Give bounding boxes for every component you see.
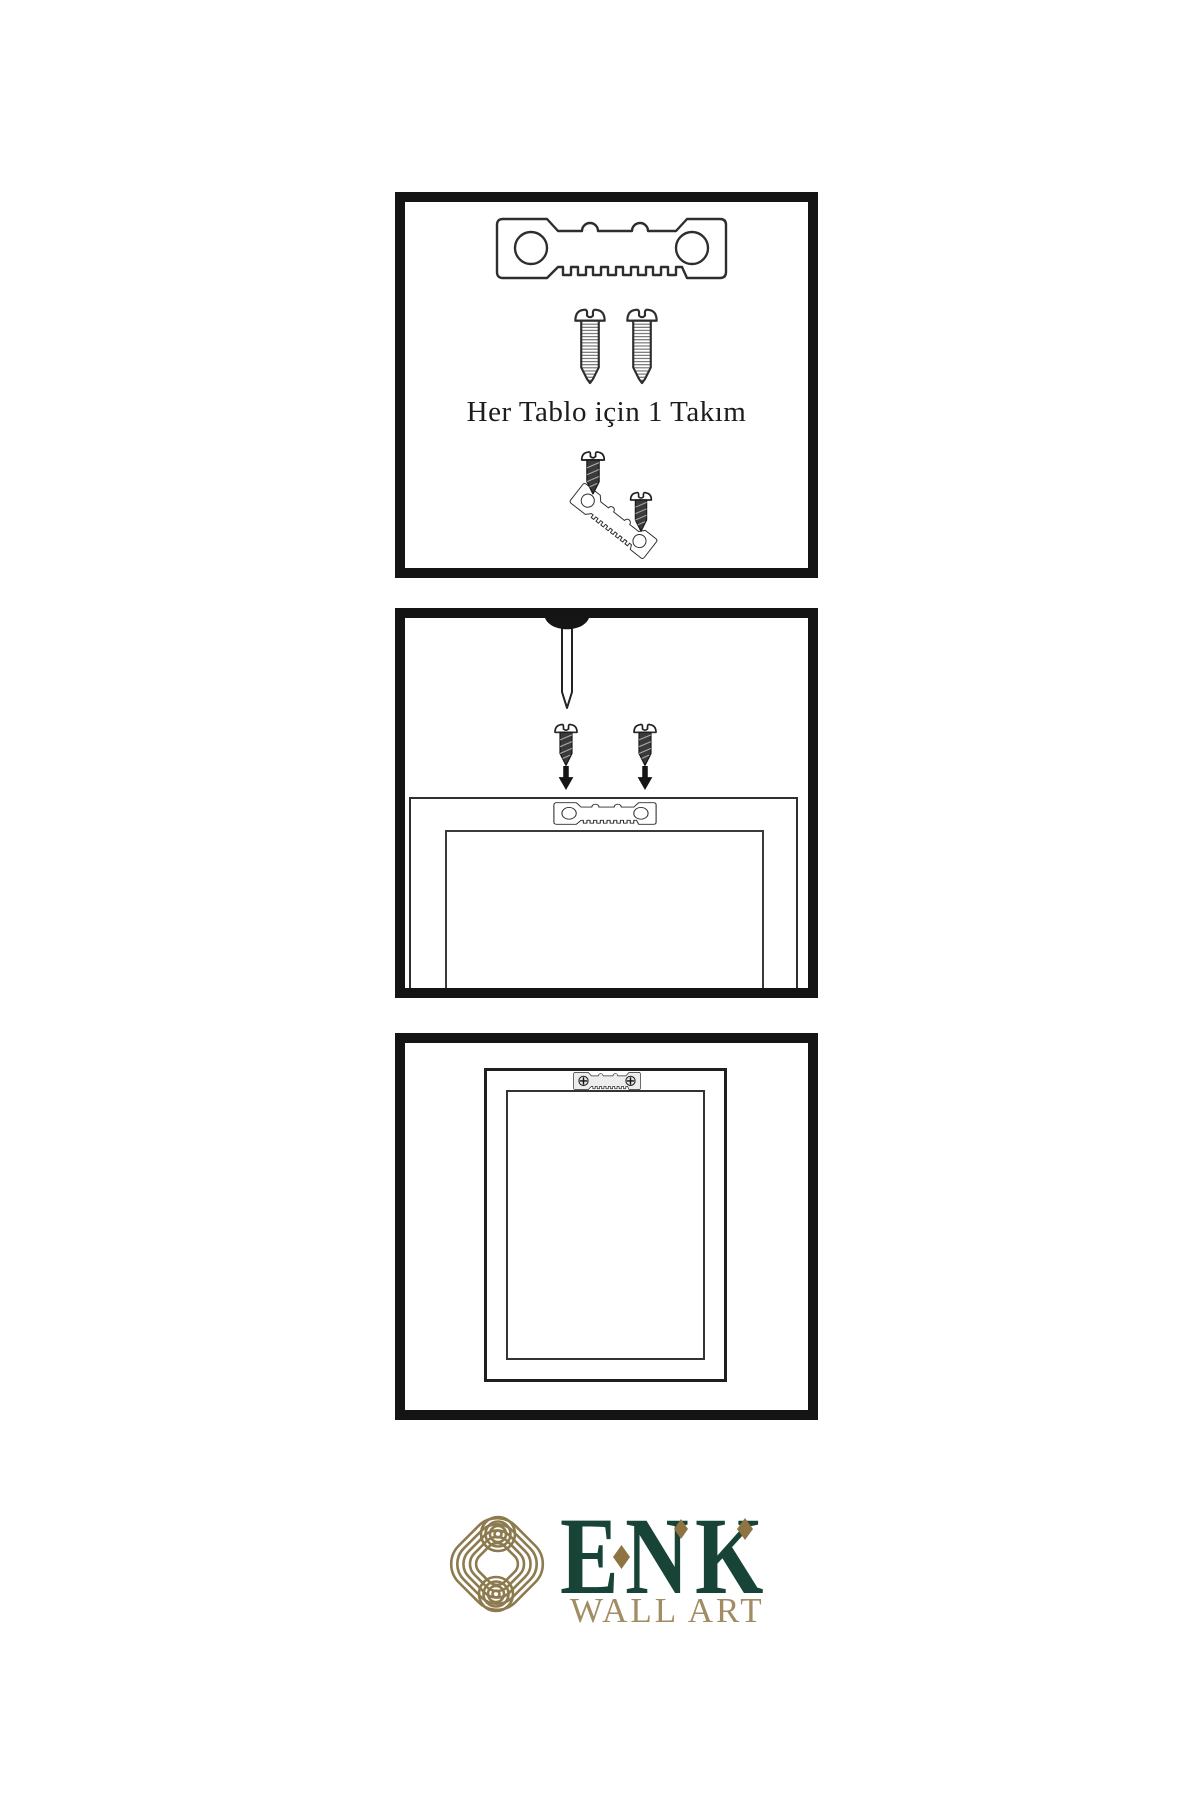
dark-screw-icon	[580, 450, 606, 496]
panel-hardware-kit: Her Tablo için 1 Takım	[395, 192, 818, 578]
phillips-screw-icon	[626, 1076, 635, 1085]
knot-emblem-icon	[437, 1500, 557, 1628]
frame-back-inner	[445, 830, 764, 998]
nail-icon	[544, 618, 590, 720]
screw-icon	[572, 307, 608, 385]
frame-back-inner	[506, 1090, 705, 1360]
phillips-screw-icon	[579, 1076, 588, 1085]
brand-tagline: WALL ART	[570, 1593, 765, 1628]
instruction-sheet: Her Tablo için 1 Takım	[0, 0, 1200, 1800]
knot-spiral-bottom	[479, 1577, 513, 1611]
sawtooth-hanger-icon	[553, 802, 657, 825]
screw-icon	[624, 307, 660, 385]
down-arrow-icon	[558, 766, 574, 790]
sawtooth-hanger-icon	[495, 217, 728, 280]
dark-screw-icon	[632, 723, 658, 767]
dark-screw-icon	[553, 723, 579, 767]
kit-caption: Her Tablo için 1 Takım	[405, 396, 808, 429]
knot-spiral-top	[481, 1517, 515, 1551]
dark-screw-icon	[629, 491, 653, 533]
down-arrow-icon	[637, 766, 653, 790]
panel-mounted-frame	[395, 1033, 818, 1420]
sawtooth-hanger-mounted-icon	[573, 1071, 641, 1091]
panel-install-step	[395, 608, 818, 998]
